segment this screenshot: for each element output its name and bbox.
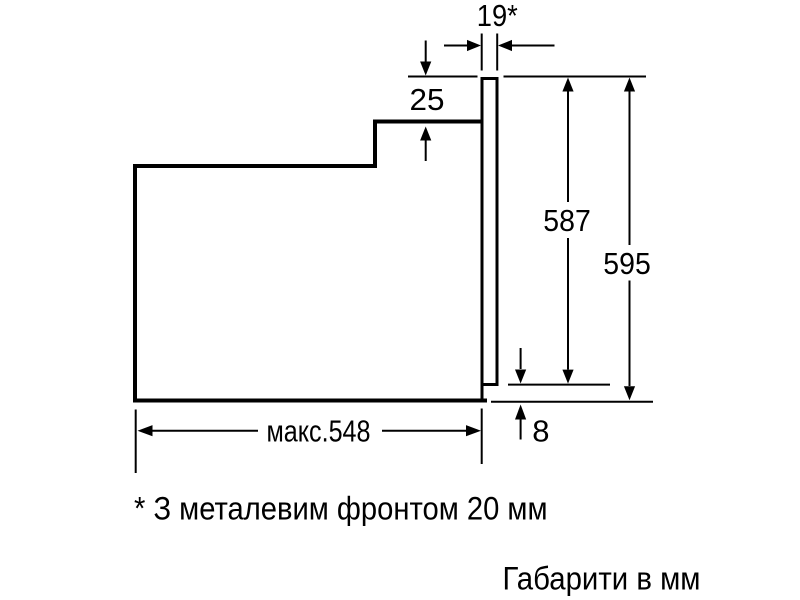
- svg-text:587: 587: [543, 203, 591, 238]
- svg-text:* З металевим фронтом 20 мм: * З металевим фронтом 20 мм: [134, 490, 548, 526]
- svg-text:Габарити в мм: Габарити в мм: [503, 560, 701, 596]
- svg-text:8: 8: [532, 414, 549, 449]
- svg-text:19*: 19*: [477, 0, 518, 33]
- svg-text:595: 595: [603, 246, 651, 281]
- svg-text:25: 25: [410, 82, 445, 117]
- svg-text:макс.548: макс.548: [267, 413, 371, 448]
